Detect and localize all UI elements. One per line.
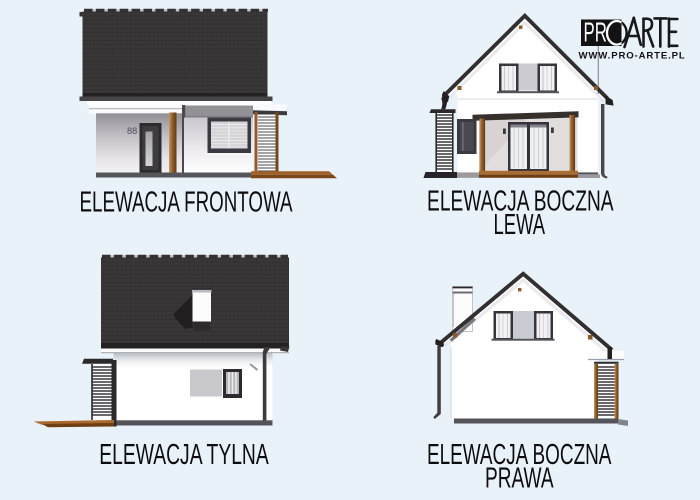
svg-text:88: 88 [127, 126, 137, 136]
svg-text:LEWA: LEWA [494, 209, 546, 241]
svg-text:ELEWACJA FRONTOWA: ELEWACJA FRONTOWA [80, 186, 293, 218]
svg-text:WWW.PRO-ARTE.PL: WWW.PRO-ARTE.PL [579, 51, 686, 62]
svg-text:PR: PR [584, 16, 607, 48]
svg-text:PRAWA: PRAWA [485, 463, 554, 495]
svg-text:ELEWACJA TYLNA: ELEWACJA TYLNA [99, 439, 269, 471]
